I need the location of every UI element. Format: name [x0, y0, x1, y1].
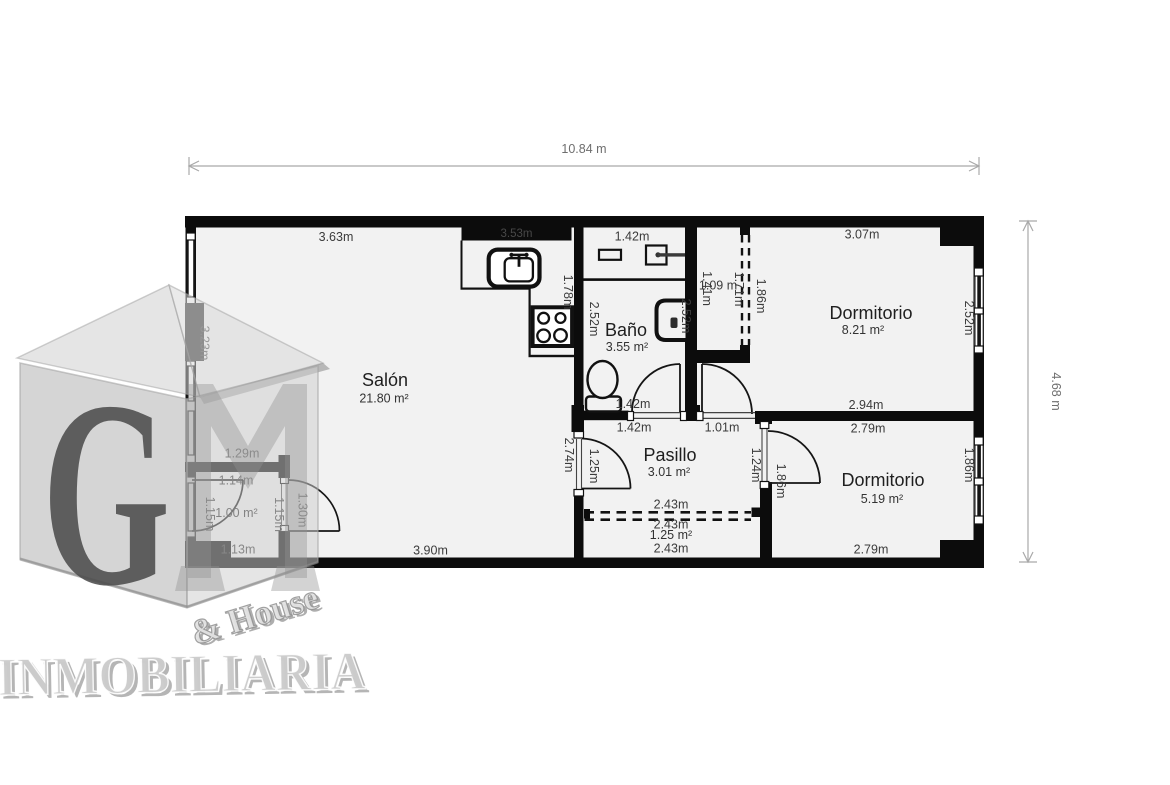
svg-text:1.86m: 1.86m [962, 448, 976, 483]
svg-text:2.74m: 2.74m [562, 438, 576, 473]
svg-text:2.79m: 2.79m [851, 422, 886, 436]
svg-text:10.84 m: 10.84 m [561, 142, 606, 156]
svg-text:5.19 m²: 5.19 m² [861, 492, 903, 506]
svg-text:1.86m: 1.86m [774, 464, 788, 499]
svg-text:1.42m: 1.42m [617, 421, 652, 435]
svg-text:8.21 m²: 8.21 m² [842, 323, 884, 337]
svg-text:INMOBILIARIA: INMOBILIARIA [0, 641, 367, 707]
svg-text:1.42m: 1.42m [616, 397, 651, 411]
svg-text:Dormitorio: Dormitorio [829, 303, 912, 323]
svg-text:Dormitorio: Dormitorio [841, 470, 924, 490]
svg-text:2.43m: 2.43m [654, 498, 689, 512]
svg-text:1.24m: 1.24m [749, 448, 763, 483]
svg-text:1.01m: 1.01m [705, 421, 740, 435]
svg-text:2.52m: 2.52m [679, 299, 693, 334]
svg-text:1.78m: 1.78m [561, 275, 575, 310]
svg-text:1.71m: 1.71m [732, 272, 746, 307]
svg-text:Pasillo: Pasillo [643, 445, 696, 465]
svg-text:3.90m: 3.90m [413, 544, 448, 558]
svg-text:2.79m: 2.79m [854, 543, 889, 557]
svg-text:1.41m: 1.41m [700, 271, 714, 306]
svg-text:2.94m: 2.94m [849, 398, 884, 412]
svg-text:1.25m: 1.25m [587, 449, 601, 484]
svg-text:2.43m: 2.43m [654, 542, 689, 556]
svg-text:Salón: Salón [362, 370, 408, 390]
svg-text:1.42m: 1.42m [615, 230, 650, 244]
svg-text:Baño: Baño [605, 320, 647, 340]
svg-text:3.01 m²: 3.01 m² [648, 465, 690, 479]
svg-text:G: G [42, 346, 170, 640]
svg-text:1.86m: 1.86m [754, 279, 768, 314]
svg-text:3.53m: 3.53m [501, 228, 533, 240]
svg-text:4.68 m: 4.68 m [1049, 372, 1063, 410]
svg-text:21.80 m²: 21.80 m² [359, 392, 408, 406]
svg-text:3.63m: 3.63m [319, 230, 354, 244]
svg-text:3.07m: 3.07m [845, 228, 880, 242]
svg-text:3.55 m²: 3.55 m² [606, 340, 648, 354]
svg-text:2.52m: 2.52m [962, 301, 976, 336]
svg-text:1.25 m²: 1.25 m² [650, 528, 692, 542]
svg-text:2.52m: 2.52m [587, 302, 601, 337]
